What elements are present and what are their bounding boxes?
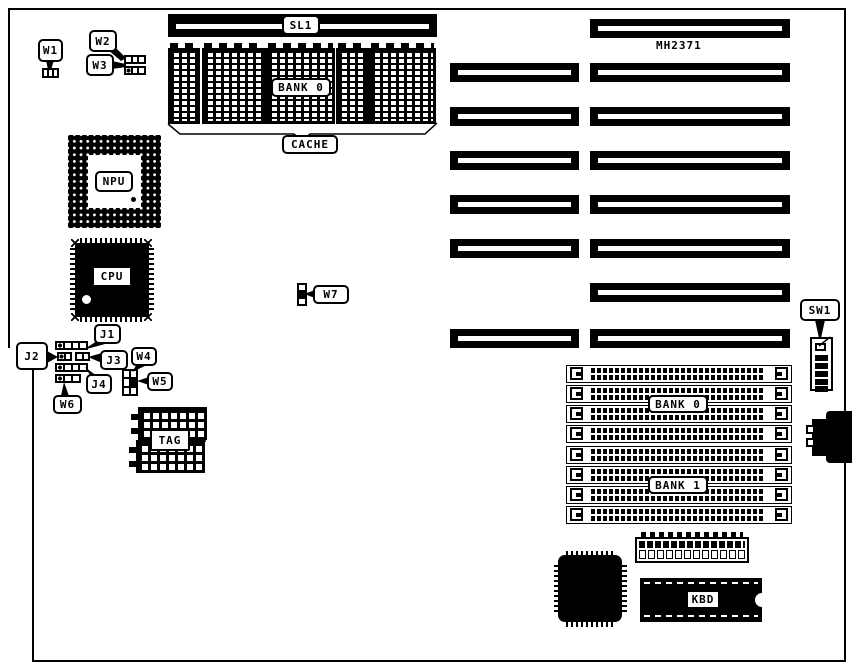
j1-label: J1 bbox=[94, 324, 121, 344]
tag-chip-pin bbox=[131, 414, 138, 420]
w6-label: W6 bbox=[53, 395, 82, 414]
expansion-slot bbox=[590, 151, 790, 170]
din-pin bbox=[806, 438, 815, 447]
expansion-slot bbox=[450, 151, 579, 170]
tag-chip-pin bbox=[129, 447, 136, 453]
expansion-slot bbox=[450, 195, 579, 214]
qfp-chip bbox=[558, 555, 622, 622]
npu-label: NPU bbox=[95, 171, 133, 192]
qfp-pins-bottom bbox=[566, 622, 614, 627]
simm-socket bbox=[566, 506, 792, 524]
power-connector-pin-row bbox=[639, 541, 745, 548]
cache-chip bbox=[369, 48, 436, 124]
w7-label: W7 bbox=[313, 285, 349, 304]
cache-label: CACHE bbox=[282, 135, 338, 154]
cpu-label: CPU bbox=[92, 266, 132, 287]
cache-chip bbox=[202, 48, 266, 124]
motherboard-diagram: SL1 BANK 0 CACHE NPU CPU bbox=[0, 0, 852, 669]
kbd-chip-pin-row bbox=[644, 582, 758, 584]
expansion-slot bbox=[590, 63, 790, 82]
npu-pin1-dot bbox=[131, 197, 136, 202]
expansion-slot bbox=[450, 107, 579, 126]
w4-w5-jumper-block bbox=[122, 369, 138, 396]
sw1-switch-open bbox=[815, 343, 826, 351]
w3-jumper bbox=[124, 66, 146, 75]
expansion-slot bbox=[450, 63, 579, 82]
sl1-label: SL1 bbox=[282, 15, 320, 35]
j2-label: J2 bbox=[16, 342, 48, 370]
sw1-switch bbox=[815, 379, 828, 385]
w2-label: W2 bbox=[89, 30, 117, 52]
expansion-slot bbox=[590, 239, 790, 258]
sw1-switch bbox=[815, 371, 828, 377]
w6-jumper bbox=[55, 374, 81, 383]
sw1-switch bbox=[815, 363, 828, 369]
expansion-slot bbox=[590, 19, 790, 38]
expansion-slot bbox=[450, 239, 579, 258]
board-outline-left-upper bbox=[8, 8, 10, 348]
w7-jumper bbox=[297, 283, 307, 306]
power-connector bbox=[635, 537, 749, 563]
w4-label: W4 bbox=[131, 347, 157, 366]
w5-label: W5 bbox=[147, 372, 173, 391]
j4-jumper bbox=[55, 363, 88, 372]
sw1-label: SW1 bbox=[800, 299, 840, 321]
tag-chip-pin bbox=[129, 461, 136, 467]
tag-chip-pin bbox=[131, 428, 138, 434]
expansion-slot bbox=[590, 283, 790, 302]
j3-label: J3 bbox=[100, 350, 128, 370]
simm-bank1-label: BANK 1 bbox=[648, 476, 708, 494]
tag-label: TAG bbox=[150, 429, 190, 451]
w3-label: W3 bbox=[86, 54, 114, 76]
simm-socket bbox=[566, 446, 792, 464]
din-pin bbox=[806, 425, 815, 434]
board-model-text: MH2371 bbox=[656, 40, 702, 51]
expansion-slot bbox=[590, 107, 790, 126]
simm-socket bbox=[566, 425, 792, 443]
w1-jumper bbox=[42, 68, 59, 78]
qfp-pins-right bbox=[622, 565, 627, 613]
keyboard-din-connector bbox=[826, 411, 852, 463]
expansion-slot bbox=[590, 195, 790, 214]
sw1-switch bbox=[815, 386, 828, 392]
board-outline-top bbox=[8, 8, 846, 10]
simm-bank0-label: BANK 0 bbox=[648, 395, 708, 413]
w1-label: W1 bbox=[38, 39, 63, 62]
cpu-pins-right bbox=[149, 248, 154, 312]
w2-jumper bbox=[124, 55, 146, 64]
j4-label: J4 bbox=[86, 374, 112, 394]
board-outline-bottom bbox=[32, 660, 846, 662]
board-outline-left-lower bbox=[32, 366, 34, 662]
cpu-pins-bottom bbox=[80, 317, 144, 322]
cpu-pin1-dot bbox=[82, 295, 91, 304]
j2-jumper bbox=[57, 352, 72, 361]
cache-bank0-label: BANK 0 bbox=[271, 78, 331, 97]
j3-jumper bbox=[75, 352, 90, 361]
kbd-chip-notch bbox=[755, 593, 762, 607]
simm-socket bbox=[566, 365, 792, 383]
j1-jumper bbox=[55, 341, 88, 350]
expansion-slot bbox=[450, 329, 579, 348]
cache-chip bbox=[168, 48, 200, 124]
power-connector-cells bbox=[639, 550, 745, 559]
sw1-dip-switch bbox=[810, 337, 833, 391]
sw1-switch bbox=[815, 355, 828, 361]
board-outline-right bbox=[844, 8, 846, 662]
w6-pointer bbox=[61, 382, 69, 396]
expansion-slot bbox=[590, 329, 790, 348]
kbd-label: KBD bbox=[686, 590, 720, 609]
kbd-chip-pin-row bbox=[644, 615, 758, 617]
sw1-pointer bbox=[815, 320, 825, 338]
cache-chip bbox=[336, 48, 369, 124]
